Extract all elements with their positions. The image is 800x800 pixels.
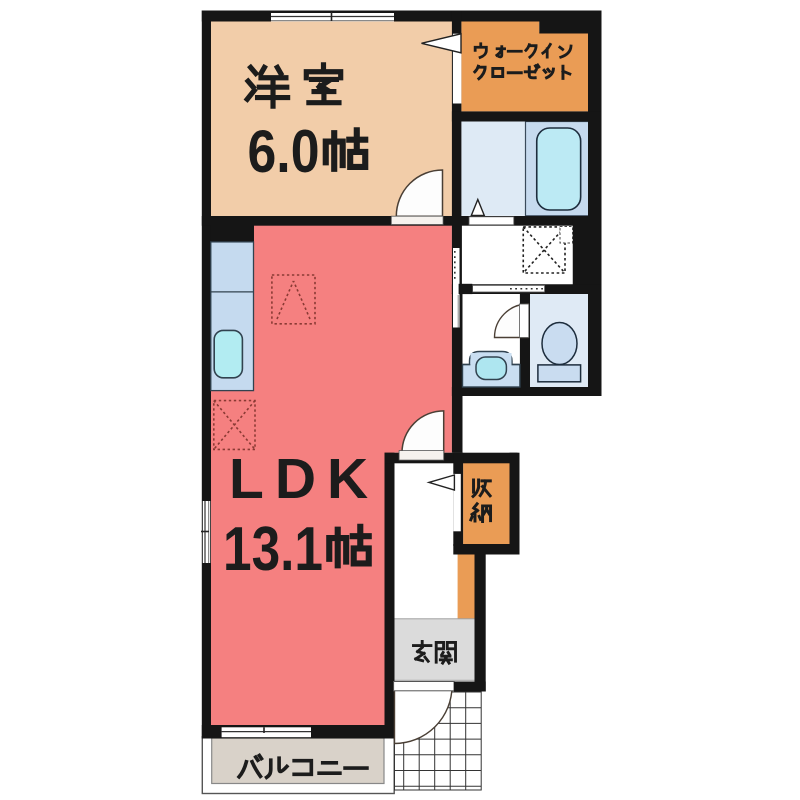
- svg-text:6.0: 6.0: [248, 118, 320, 185]
- svg-text:13.1: 13.1: [223, 515, 323, 584]
- svg-text:LDK: LDK: [229, 447, 379, 511]
